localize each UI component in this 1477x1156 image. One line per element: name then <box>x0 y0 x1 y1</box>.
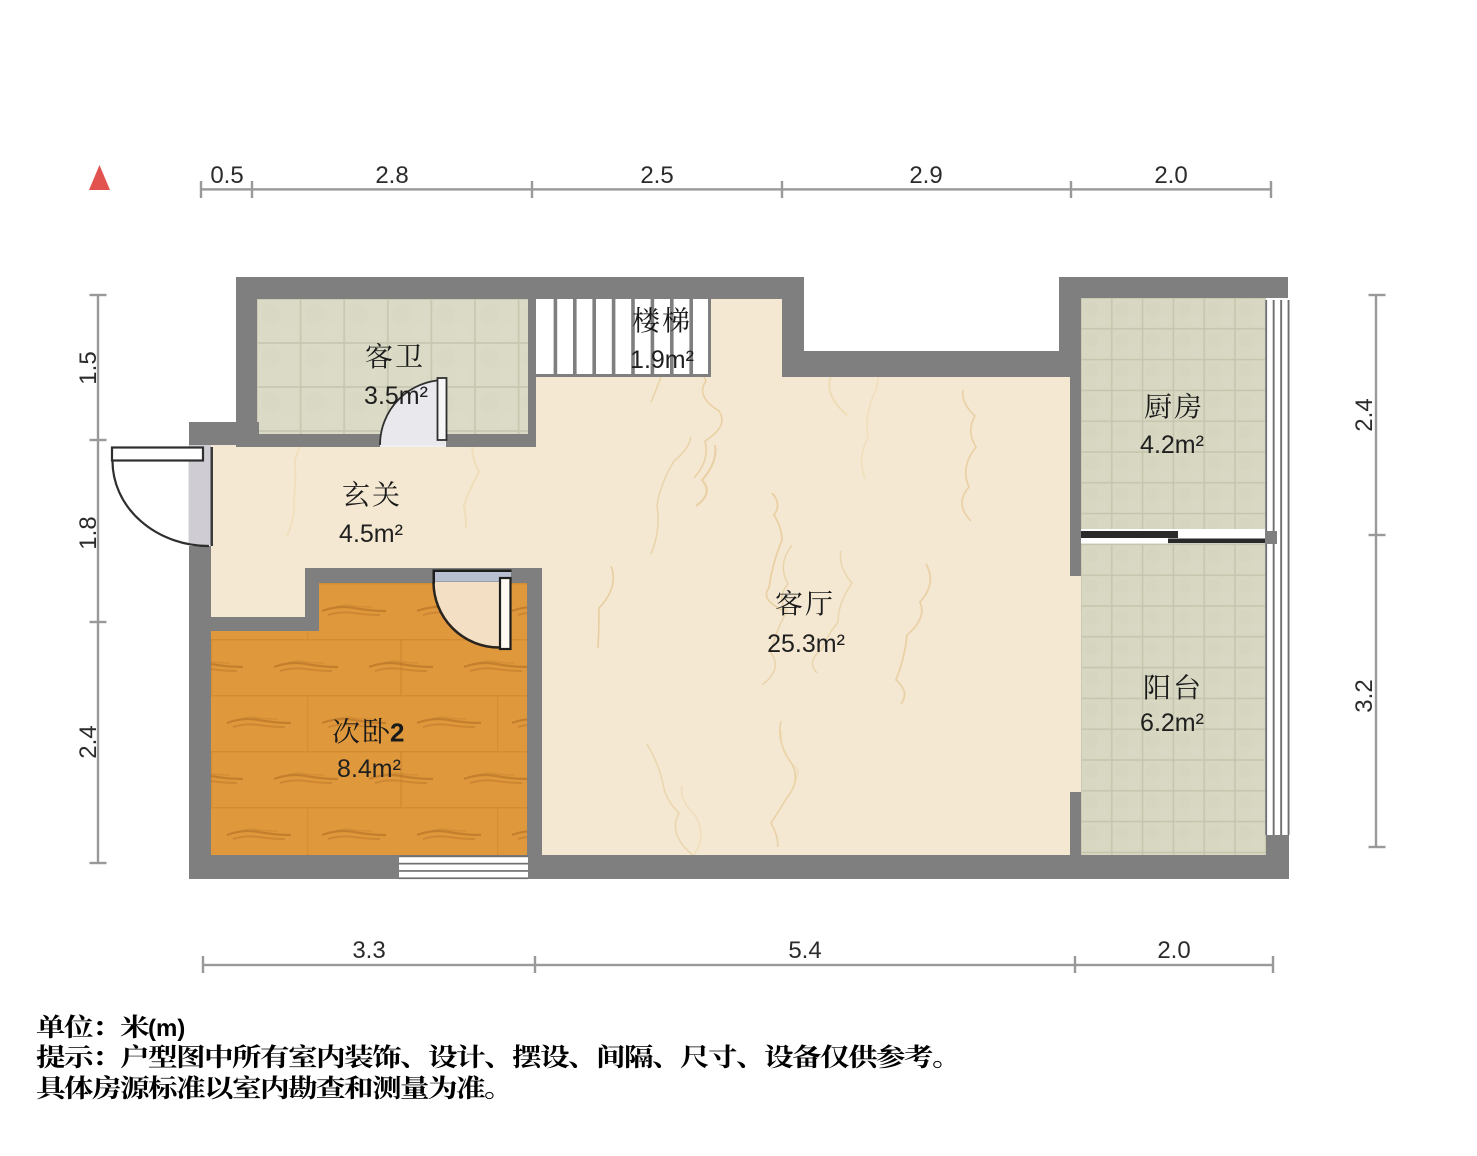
svg-text:4.5m²: 4.5m² <box>339 520 403 548</box>
svg-text:0.5: 0.5 <box>210 162 243 189</box>
svg-text:3.3: 3.3 <box>352 937 385 964</box>
svg-text:3.5m²: 3.5m² <box>364 382 428 410</box>
svg-text:2.9: 2.9 <box>909 162 942 189</box>
svg-text:1.8: 1.8 <box>75 516 102 549</box>
svg-text:25.3m²: 25.3m² <box>767 630 845 658</box>
svg-text:1.9m²: 1.9m² <box>630 346 694 374</box>
svg-text:2.0: 2.0 <box>1157 937 1190 964</box>
svg-text:3.2: 3.2 <box>1351 679 1378 712</box>
svg-text:2.8: 2.8 <box>375 162 408 189</box>
svg-text:2.0: 2.0 <box>1154 162 1187 189</box>
svg-text:8.4m²: 8.4m² <box>337 755 401 783</box>
svg-text:5.4: 5.4 <box>788 937 821 964</box>
svg-text:2.5: 2.5 <box>640 162 673 189</box>
svg-text:1.5: 1.5 <box>75 351 102 384</box>
svg-text:4.2m²: 4.2m² <box>1140 431 1204 459</box>
svg-text:2: 2 <box>390 718 404 748</box>
svg-text:6.2m²: 6.2m² <box>1140 709 1204 737</box>
svg-text:2.4: 2.4 <box>75 725 102 758</box>
svg-text:2.4: 2.4 <box>1351 398 1378 431</box>
